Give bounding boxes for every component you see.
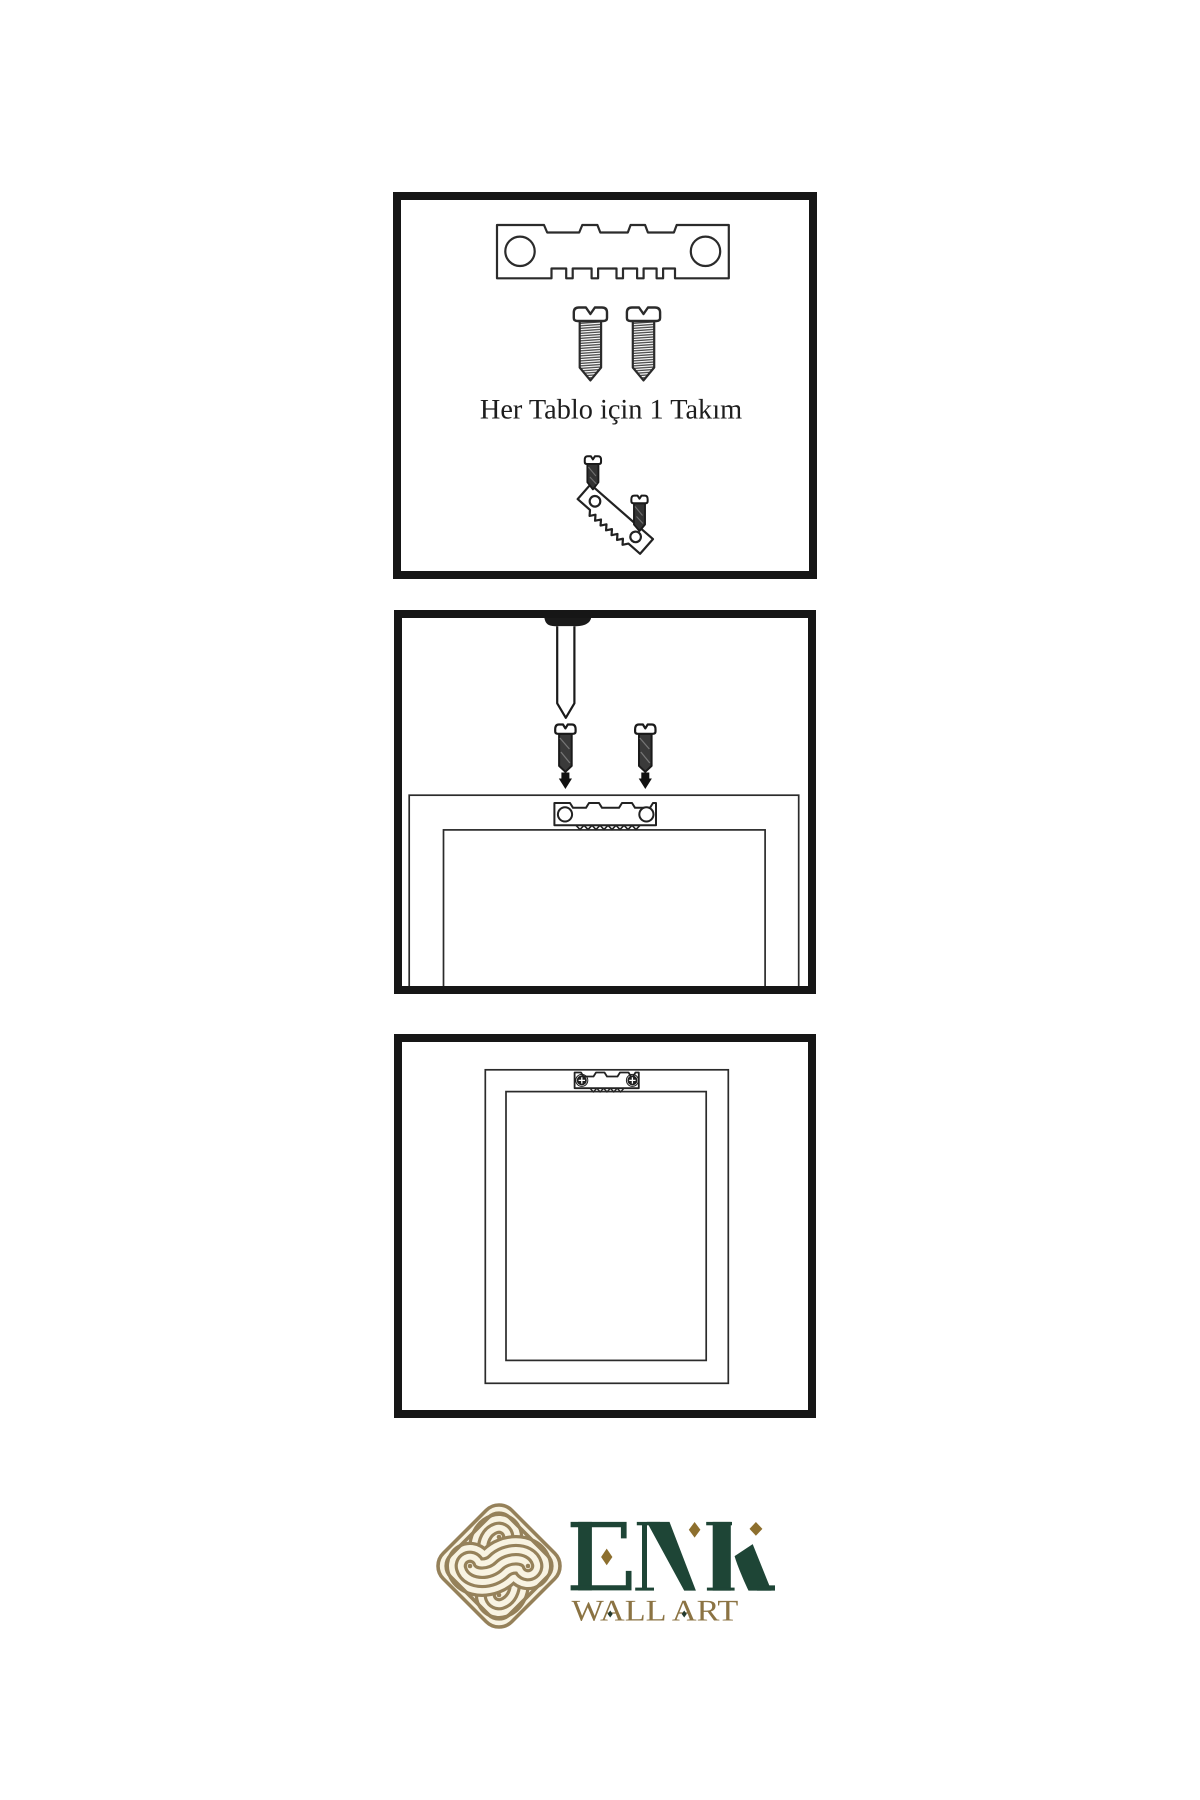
svg-text:WALL ART: WALL ART — [572, 1595, 739, 1628]
svg-text:Her Tablo için 1 Takım: Her Tablo için 1 Takım — [480, 395, 742, 426]
